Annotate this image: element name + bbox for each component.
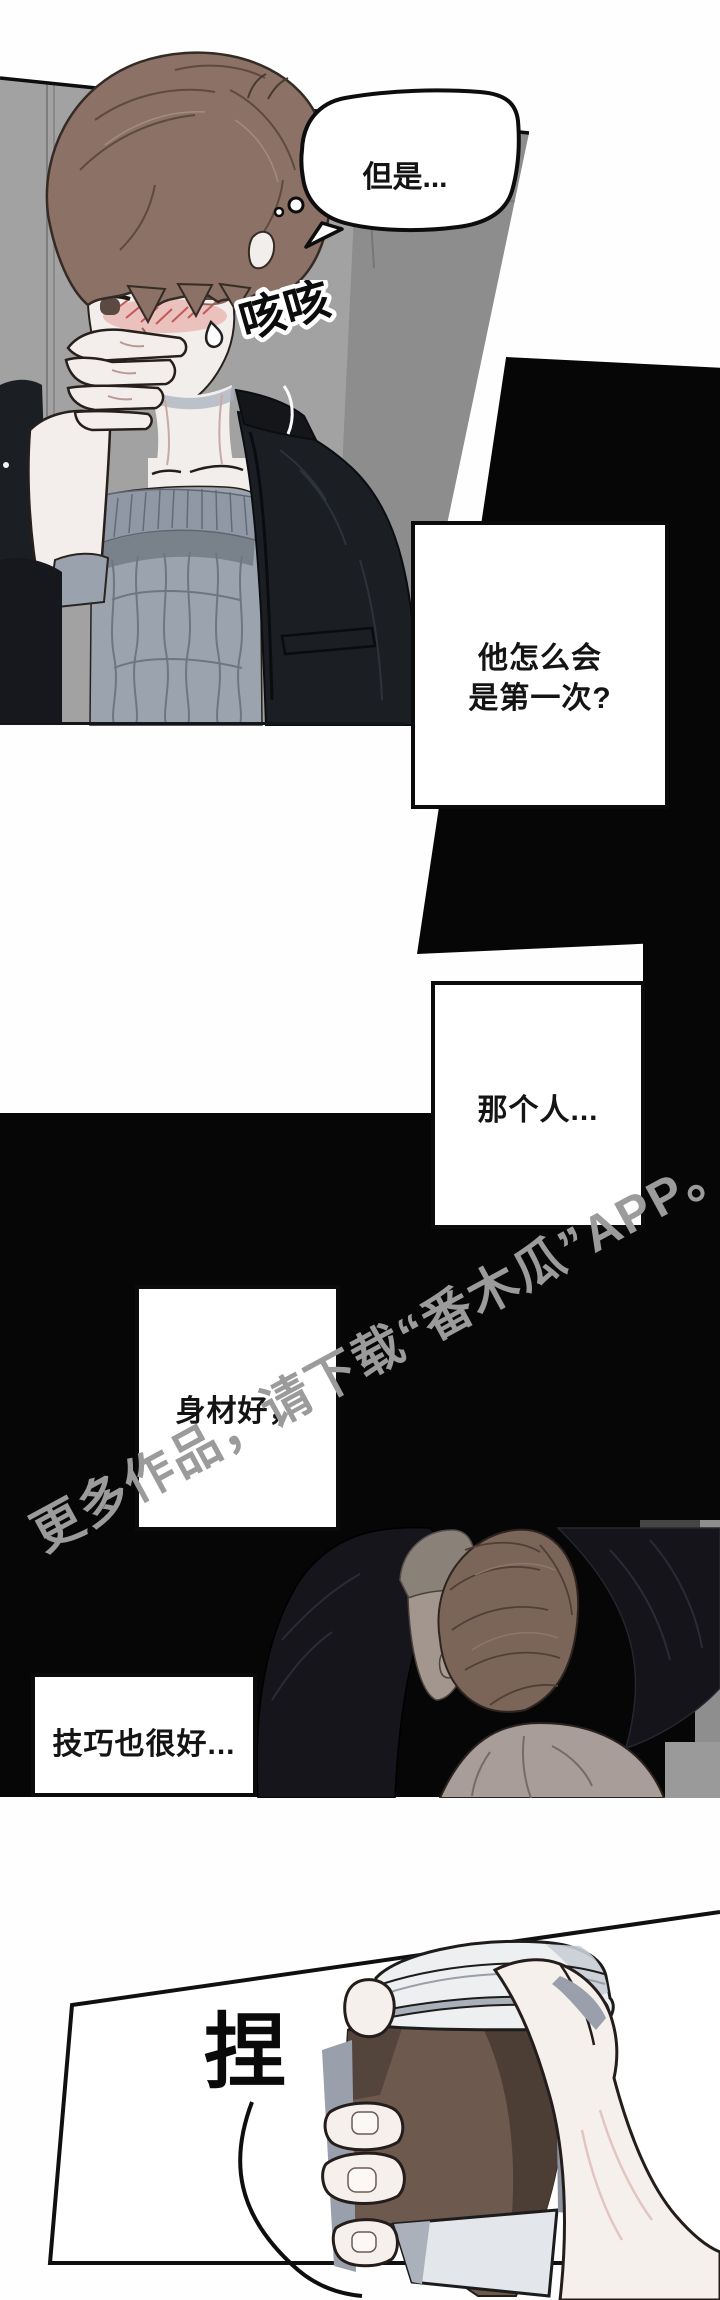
fingernail — [348, 2168, 376, 2192]
caption-box-2-text: 那个人... — [477, 1091, 598, 1131]
jacket-button-highlight — [3, 462, 9, 468]
caption-box-4: 技巧也很好... — [31, 1673, 257, 1797]
bubble-tail — [306, 223, 342, 247]
jacket-left-sleeve — [0, 558, 62, 725]
panel1-bottom-edge — [0, 722, 405, 725]
caption-line: 是第一次? — [468, 679, 611, 719]
left-eye-iris — [100, 298, 120, 315]
speech-bubble: 但是... — [260, 80, 540, 270]
scene-bed-corner — [665, 1742, 720, 1798]
panel5-coffee-cup: 捏 — [0, 1880, 720, 2300]
sfx-cough-text: 咳咳 — [233, 280, 336, 348]
dark-scene-illustration — [240, 1520, 720, 1798]
speech-text: 但是... — [362, 161, 447, 194]
caption-box-1-text: 他怎么会 是第一次? — [468, 639, 611, 719]
thought-dot-small — [275, 208, 283, 216]
black-panel-connector — [643, 930, 720, 1115]
thought-dot-large — [289, 198, 303, 212]
wrapping-fingers — [323, 2103, 405, 2266]
fingernail — [352, 2232, 376, 2252]
caption-box-1: 他怎么会 是第一次? — [411, 521, 669, 809]
sfx-pinch-text: 捏 — [204, 2007, 286, 2098]
caption-box-4-text: 技巧也很好... — [52, 1725, 235, 1765]
fingertip-on-lid — [345, 1980, 394, 2037]
caption-line: 他怎么会 — [468, 639, 611, 679]
jacket-right — [238, 412, 418, 725]
sfx-cough: 咳咳 — [225, 280, 375, 380]
fingernail — [352, 2112, 378, 2134]
comic-page: 但是... 咳咳 他怎么会 是第一次? 那个人... 身材好， 技巧也很好... — [0, 0, 720, 2300]
